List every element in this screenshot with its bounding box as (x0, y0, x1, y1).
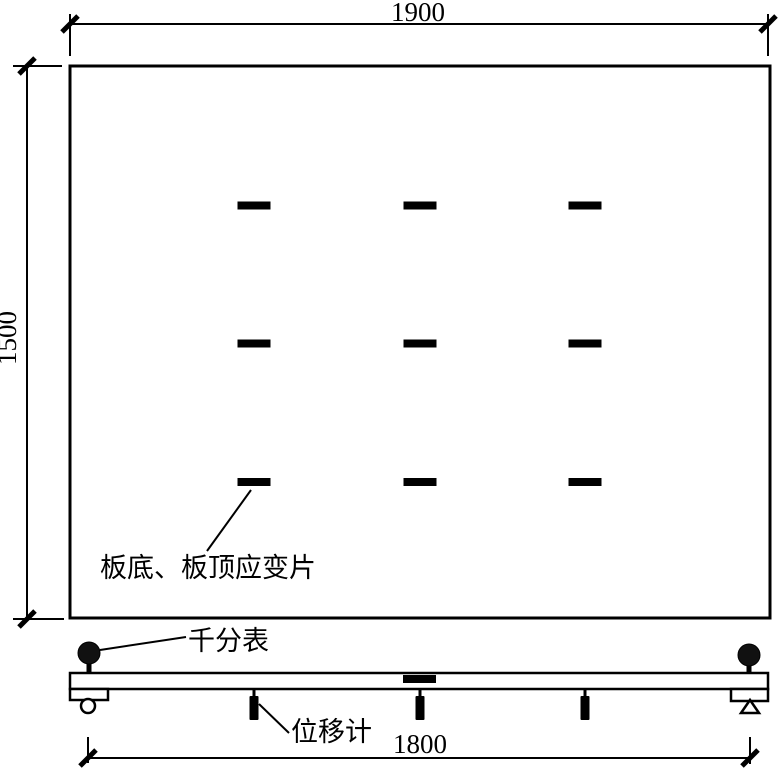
strain-gauge-mark (569, 478, 602, 486)
dial-indicators: 千分表 (78, 626, 760, 674)
displacement-transducer-icon (250, 696, 259, 720)
transducer-stem (253, 689, 256, 697)
transducer-stem (419, 689, 422, 697)
transducer-stem (584, 689, 587, 697)
dial-indicator-icon (78, 642, 100, 664)
diagram-svg: 1900 1500 板底、板顶应变片 千分 (0, 0, 781, 774)
dial-indicator-label: 千分表 (188, 626, 269, 656)
dial-indicator-leader-line (100, 637, 186, 650)
strain-gauge-mark (238, 478, 271, 486)
top-dimension: 1900 (62, 0, 776, 56)
strain-gauge-mark (404, 478, 437, 486)
bottom-dimension: 1800 (80, 729, 758, 766)
center-load-pad (403, 675, 436, 683)
strain-gauge-mark (569, 340, 602, 348)
strain-gauge-mark (238, 340, 271, 348)
displacement-meter-leader-line (259, 704, 289, 733)
support-beam (70, 673, 768, 689)
left-dimension-label: 1500 (0, 311, 22, 365)
engineering-diagram: 1900 1500 板底、板顶应变片 千分 (0, 0, 781, 774)
strain-gauge-mark (569, 202, 602, 210)
bottom-dimension-label: 1800 (393, 729, 447, 759)
strain-gauge-mark (238, 202, 271, 210)
top-dimension-label: 1900 (391, 0, 445, 27)
displacement-transducer-icon (416, 696, 425, 720)
roller-support-icon (81, 699, 95, 713)
left-dimension: 1500 (0, 58, 64, 627)
displacement-transducer-icon (581, 696, 590, 720)
strain-gauge-label: 板底、板顶应变片 (100, 553, 316, 583)
strain-gauge-mark (404, 202, 437, 210)
dial-indicator-icon (738, 644, 760, 666)
strain-gauge-mark (404, 340, 437, 348)
right-support (731, 689, 768, 713)
displacement-meter-label: 位移计 (291, 717, 372, 747)
left-support (70, 689, 108, 713)
